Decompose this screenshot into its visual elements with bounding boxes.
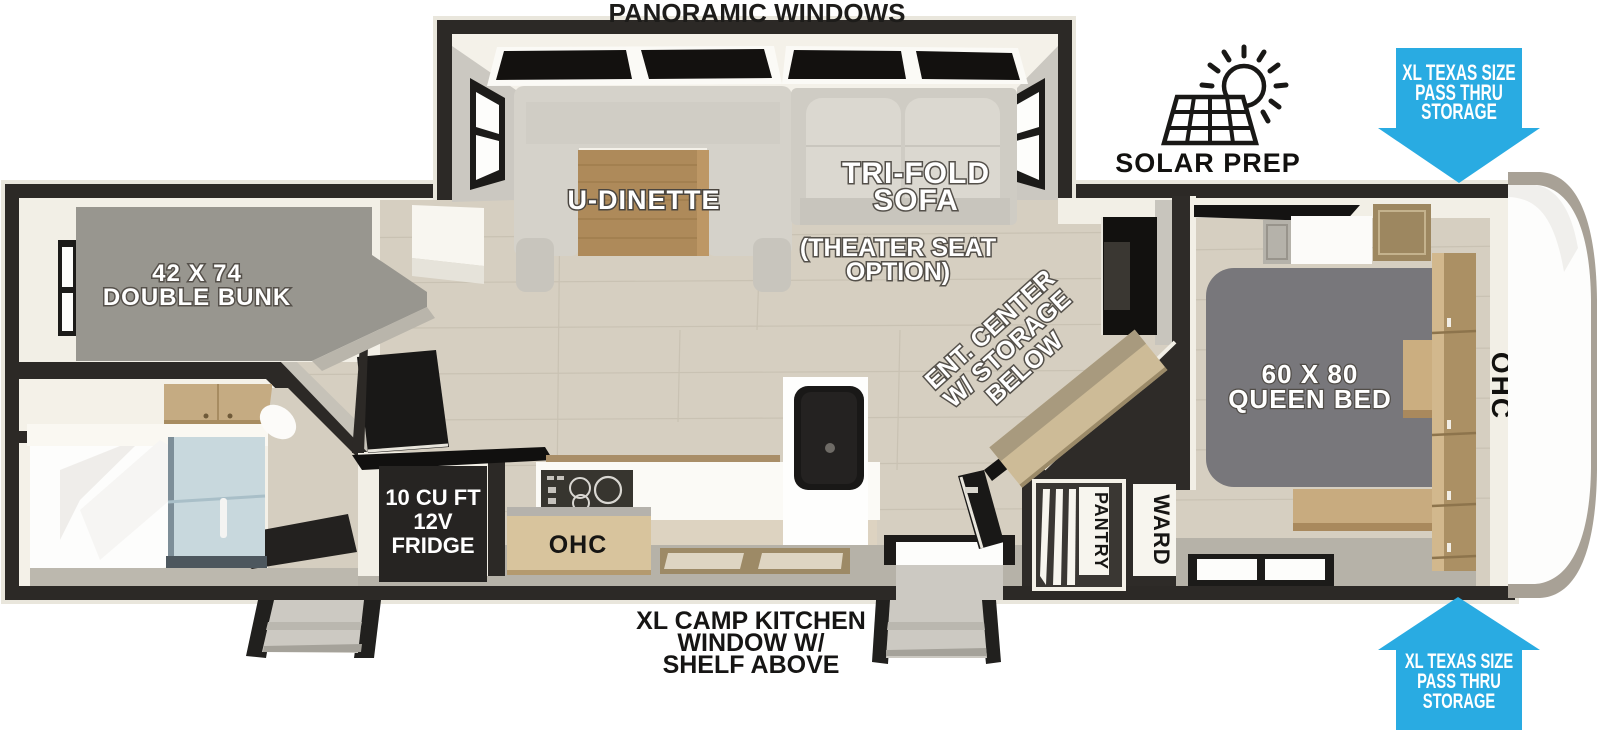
svg-text:12V: 12V <box>413 509 452 534</box>
svg-text:STORAGE: STORAGE <box>1423 689 1495 712</box>
svg-text:WARD: WARD <box>1149 494 1174 565</box>
svg-text:PANTRY: PANTRY <box>1091 492 1111 570</box>
svg-text:10 CU FT: 10 CU FT <box>385 485 481 510</box>
svg-text:SOFA: SOFA <box>873 184 959 217</box>
svg-text:SHELF ABOVE: SHELF ABOVE <box>663 651 840 679</box>
svg-text:OHC: OHC <box>549 531 608 559</box>
svg-text:FRIDGE: FRIDGE <box>391 533 474 558</box>
svg-text:DOUBLE BUNK: DOUBLE BUNK <box>103 284 291 311</box>
svg-text:PANORAMIC WINDOWS: PANORAMIC WINDOWS <box>608 0 905 28</box>
svg-text:QUEEN BED: QUEEN BED <box>1228 384 1392 414</box>
svg-text:U-DINETTE: U-DINETTE <box>568 185 721 215</box>
svg-text:OPTION): OPTION) <box>846 258 950 286</box>
svg-text:42 X 74: 42 X 74 <box>152 260 242 287</box>
svg-text:STORAGE: STORAGE <box>1421 100 1497 124</box>
svg-text:SOLAR PREP: SOLAR PREP <box>1115 148 1301 178</box>
